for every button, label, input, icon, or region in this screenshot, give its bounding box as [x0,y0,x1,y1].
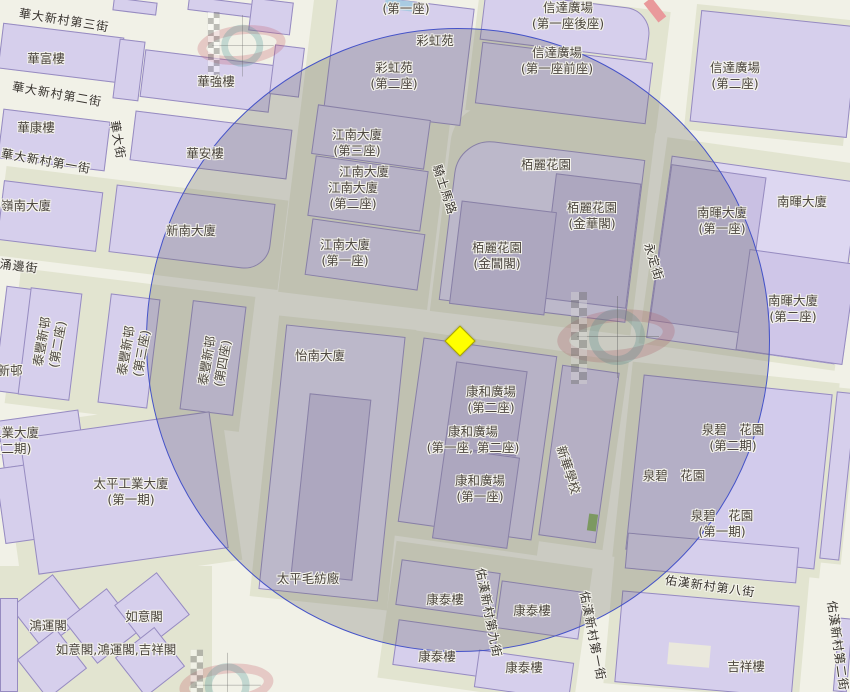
building-label: 吉祥樓 [727,659,765,675]
building-label: 江南大廈 (第二座) [328,180,378,212]
building-label: (第一座) [382,1,429,17]
building-label: 太平毛紡廠 [277,571,340,587]
building-label: 泉碧 花園 (第一期) [691,508,754,540]
building-label: 康和廣場 (第一座) [455,473,505,505]
building-label: 如意閣 [125,609,163,625]
building-label: 栢麗花園 (金華閣) [567,200,617,232]
building-label: 嶺南大廈 [1,198,51,214]
map-canvas[interactable]: (第一座)彩虹苑彩虹苑 (第二座)信達廣場 (第一座後座)信達廣場 (第一座前座… [0,0,850,692]
building-label: 華安樓 [186,146,224,162]
building[interactable] [112,0,157,16]
building-label: 新南大廈 [166,223,216,239]
street-label: 華大新村第二街 [11,80,103,111]
building-label: 鴻運閣 [29,618,67,634]
building-label: 江南大廈 (第三座) [332,127,382,159]
building-label: 華富樓 [27,51,65,67]
building-label: 康泰樓 [426,592,464,608]
building-label: 康和廣場 (第二座) [466,384,516,416]
building-label: 康泰樓 [505,660,543,676]
building[interactable] [614,590,799,692]
building-label: 泉碧 花園 [643,468,706,484]
building-label: 彩虹苑 (第二座) [370,60,417,92]
building-label: 栢麗花園 [521,157,571,173]
building-label: 華強樓 [197,74,235,90]
building-label: 泉碧 花園 (第二期) [702,422,765,454]
building-label: 怡南大廈 [295,348,345,364]
building-label: 華康樓 [17,120,55,136]
building-label: 康泰樓 [513,603,551,619]
building[interactable] [248,0,294,35]
building-label: 江南大廈 (第一座) [320,237,370,269]
street-label: 華大街 [106,119,128,160]
building-label: 信達廣場 (第一座前座) [521,45,593,77]
building-label: 南暉大廈 [777,194,827,210]
building-label: 南暉大廈 (第一座) [697,205,747,237]
building-label: 栢麗花園 (金閶閣) [472,240,522,272]
building[interactable] [0,598,18,692]
building[interactable] [0,180,103,252]
building-label: 新邨 [0,363,23,379]
building-label: 南暉大廈 (第二座) [768,293,818,325]
courtyard [667,642,711,668]
building-label: 工業大廈 (二期) [0,425,39,457]
building[interactable] [187,0,254,18]
building-label: 太平工業大廈 (第一期) [93,476,168,508]
building-label: 信達廣場 (第二座) [710,60,760,92]
building-label: 如意閣,鴻運閣,吉祥閣 [56,642,176,658]
building-label: 康泰樓 [418,649,456,665]
building-label: 康和廣場 (第一座, 第二座) [427,424,520,456]
building-label: 彩虹苑 [416,33,454,49]
building-label: 信達廣場 (第一座後座) [532,0,604,32]
building-label: 江南大廈 [339,164,389,180]
